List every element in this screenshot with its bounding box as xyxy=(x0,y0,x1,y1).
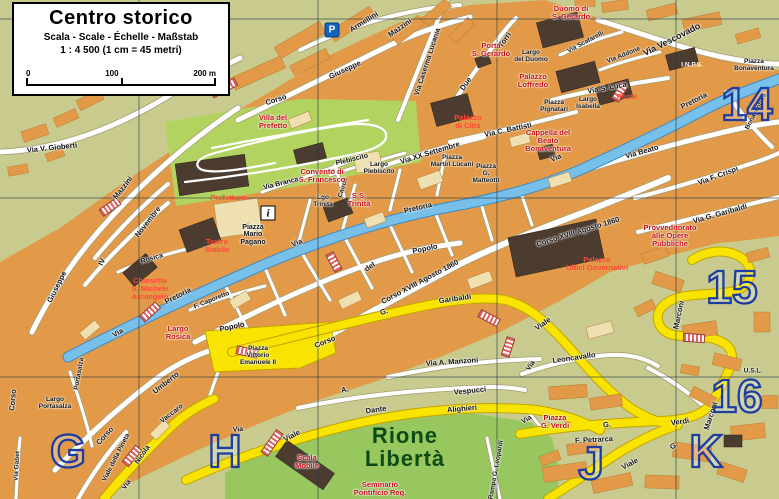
poi-label: Chiesetta S. Michele Arcangelo xyxy=(132,277,169,301)
poi-label: Villa del Prefetto xyxy=(259,114,287,130)
poi-label: Duomo di S. Gerardo xyxy=(552,5,590,21)
poi-label: Provveditorato alle Opere Pubbliche xyxy=(644,224,697,248)
scale-bar-ticks: 0 100 200 m xyxy=(26,69,216,78)
poi-label: Cappella del Beato Bonaventura xyxy=(525,129,571,153)
scale-tick-0: 0 xyxy=(26,69,30,78)
street-label: Largo Isabella xyxy=(576,97,600,111)
poi-label: Seminario Pontificio Reg. xyxy=(354,481,407,497)
street-label: Largo Plebiscito xyxy=(364,162,395,176)
street-label: I.N.P.S. xyxy=(681,63,703,70)
building-block xyxy=(586,321,614,339)
poi-label: Teatro Stabile xyxy=(205,238,230,254)
street-label: Piazza Martiri Lucani xyxy=(431,155,474,169)
poi-label: Largo Rosica xyxy=(166,325,191,341)
street-label: G. xyxy=(603,421,612,430)
poi-label: S.S. Trinità xyxy=(348,192,371,208)
poi-label: Prefettura xyxy=(210,194,245,202)
poi-label: Poste xyxy=(617,93,637,101)
poi-label: Palazzo Loffredo xyxy=(518,73,548,89)
building-monument xyxy=(724,435,742,447)
building-block xyxy=(589,394,622,410)
grid-index-label: 14 xyxy=(721,81,772,127)
map-scale-text: 1 : 4 500 (1 cm = 45 metri) xyxy=(14,45,228,56)
poi-label: Scala Mobile xyxy=(295,454,319,470)
stairway-symbol xyxy=(683,333,706,344)
street-label: Largo del Duomo xyxy=(514,50,548,64)
grid-index-label: 15 xyxy=(706,264,757,310)
poi-label: Palazzo Uffici Governativi xyxy=(566,256,628,272)
building-block xyxy=(7,164,28,176)
street-label: A. xyxy=(341,385,350,394)
scale-bar: 0 100 200 m xyxy=(26,69,216,86)
street-label: Lgo Trinità xyxy=(313,195,333,209)
building-block xyxy=(735,28,761,44)
parking-icon: P xyxy=(325,23,340,38)
building-block xyxy=(754,312,770,332)
poi-label: Piazza G. Verdi xyxy=(541,414,569,430)
scale-bar-line xyxy=(26,78,216,86)
info-icon: i xyxy=(261,206,276,221)
grid-index-label: K xyxy=(689,428,722,474)
district-label: Rione Libertà xyxy=(365,424,445,470)
legend-title-box: Centro storico Scala - Scale - Échelle -… xyxy=(12,2,230,96)
map-title: Centro storico xyxy=(14,7,228,30)
poi-label: Porta S. Gerardo xyxy=(472,42,510,58)
street-label: Piazza Bonaventura xyxy=(734,59,774,73)
building-block xyxy=(645,475,679,489)
street-label: Piazza Pignatari xyxy=(540,100,568,114)
scale-tick-100: 100 xyxy=(105,69,118,78)
building-block xyxy=(646,3,678,21)
building-block xyxy=(21,124,49,142)
grid-index-label: J xyxy=(578,440,604,486)
poi-label: Palazzo di Città xyxy=(454,114,482,130)
building-block xyxy=(53,109,79,128)
street-label: Piazza G. Matteotti xyxy=(472,164,499,184)
street-label: Piazza Vittorio Emanuele II xyxy=(240,346,276,366)
street-label: Piazza Mario Pagano xyxy=(240,224,265,246)
building-block xyxy=(549,384,588,400)
poi-label: Convento di S. Francesco xyxy=(299,168,346,184)
building-block xyxy=(762,396,778,409)
building-block xyxy=(601,0,628,13)
scale-tick-200: 200 m xyxy=(193,69,216,78)
map-subtitle: Scala - Scale - Échelle - Maßstab xyxy=(14,32,228,43)
grid-index-label: 16 xyxy=(711,373,762,419)
map-viewport[interactable]: ArmelliniMazziniGiuseppeCorsoVia Caserma… xyxy=(0,0,779,499)
grid-index-label: G xyxy=(50,428,86,474)
grid-index-label: H xyxy=(208,428,241,474)
street-label: Largo Portasalza xyxy=(39,397,72,411)
